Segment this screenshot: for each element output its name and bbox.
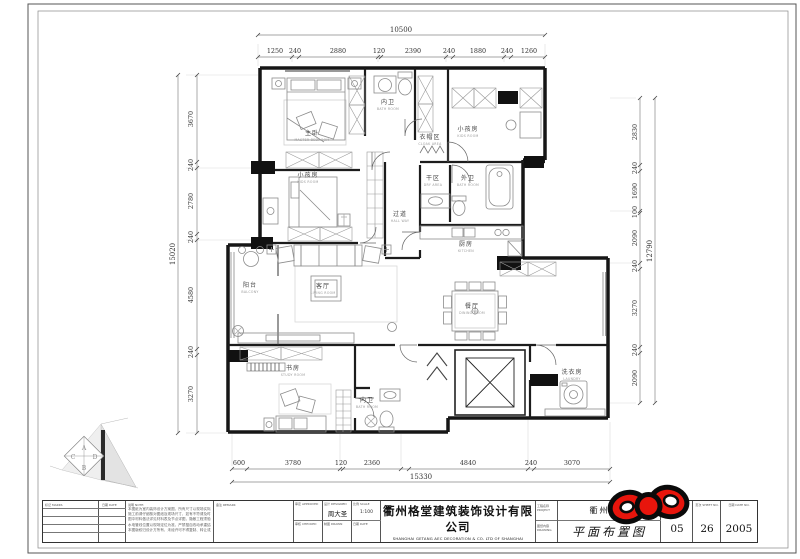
dim-bottom-overall: 15330 — [410, 473, 432, 481]
dim-left-seg: 3670 — [187, 111, 195, 127]
room-sublabel: LIVING ROOM — [311, 291, 336, 295]
sign-scale-label: 比例 SCALE — [353, 502, 370, 506]
dim-bottom-seg: 2360 — [364, 459, 380, 467]
kids2-furniture — [263, 177, 350, 227]
company-cell: 衢州格堂建筑装饰设计有限公司 SHANGHAI GETANG AEC DECOR… — [381, 501, 536, 542]
dim-top-overall: 10500 — [390, 26, 412, 34]
dim-right-seg: 2830 — [631, 124, 639, 140]
sign-drawn-label: 制图 DRAWN — [324, 522, 342, 526]
project-label: 工程名称PROJECT — [537, 504, 550, 512]
company-name-cn: 衢州格堂建筑装饰设计有限公司 — [381, 503, 535, 535]
signature-grid: 审定 APPROVED 设计 DESIGNED 周大圣 比例 SCALE 1:1… — [294, 501, 381, 542]
room-label-hall: 过道 — [393, 210, 407, 218]
keyplan-letter-a: A — [81, 445, 87, 452]
room-label-kids-top: 小孩房 — [457, 125, 478, 133]
drawing-label: 图纸内容DRAWING — [537, 524, 552, 532]
date-header: 日期 DATE NO. — [723, 503, 755, 507]
room-sublabel: KITCHEN — [458, 249, 474, 253]
dim-right-seg: 2090 — [631, 230, 639, 246]
room-sublabel: LAUNDRY — [563, 377, 580, 381]
sign-date-label: 日期 DATE — [353, 522, 368, 526]
window-lines — [231, 252, 606, 338]
revision-col1-header: 标记 MARKS — [45, 503, 63, 507]
room-label-balcony: 阳台 — [243, 281, 257, 289]
room-sublabel: BATH ROOM — [356, 405, 378, 409]
dim-left-seg: 4580 — [187, 287, 195, 303]
company-name-en: SHANGHAI GETANG AEC DECORATION & CO. LTD… — [381, 536, 535, 541]
note-line: 图中材料做法详见材料表及节点详图，隐蔽工程须验收合格后方可封闭。 — [128, 517, 211, 522]
room-label-laundry: 洗衣房 — [561, 368, 582, 376]
sheet-no-value: 26 — [693, 523, 721, 535]
room-sublabel: CLOAK AREA — [418, 142, 442, 146]
sign-approved-label: 审定 APPROVED — [295, 502, 318, 506]
bath-bottom-fixtures — [379, 389, 400, 432]
dim-chain-left: 15020 3670 240 2780 240 4580 240 3270 — [169, 73, 199, 435]
room-label-dining: 餐厅 — [465, 302, 479, 310]
drawing-sheet: 10500 1250 240 2880 120 2390 240 1880 24… — [0, 0, 800, 559]
dim-left-seg: 240 — [187, 159, 195, 171]
sign-checked-label: 审核 CHECKED — [295, 522, 316, 526]
dim-left-overall: 15020 — [169, 243, 177, 265]
room-sublabel: BALCONY — [241, 290, 258, 294]
keyplan-letter-b: B — [82, 465, 87, 472]
elevator-shaft — [455, 350, 525, 415]
dim-right-seg: 100 — [631, 206, 639, 218]
dim-left-seg: 240 — [187, 231, 195, 243]
dim-left-seg: 2780 — [187, 193, 195, 209]
dim-chain-bottom: 15330 600 3780 120 2360 4840 240 3070 — [230, 459, 612, 484]
dim-right-seg: 240 — [631, 344, 639, 356]
dim-bottom-seg: 120 — [335, 459, 347, 467]
dim-top-seg: 240 — [501, 47, 513, 55]
dim-left-seg: 240 — [187, 346, 195, 358]
kids-top-furniture — [506, 112, 541, 138]
bath-top-fixtures — [374, 72, 412, 95]
designer-name: 周大圣 — [323, 508, 352, 518]
dim-chain-top: 10500 1250 240 2880 120 2390 240 1880 24… — [256, 26, 547, 59]
dim-chain-right: 12790 2830 240 1690 100 2090 240 3270 24… — [631, 96, 657, 405]
room-label-cloak: 衣帽区 — [419, 133, 440, 141]
room-sublabel: HALL WAY — [391, 219, 409, 223]
room-sublabel: BATH ROOM — [457, 183, 479, 187]
room-sublabel: STUDY ROOM — [281, 373, 306, 377]
dim-bottom-seg: 240 — [525, 459, 537, 467]
dim-bottom-seg: 600 — [233, 459, 245, 467]
room-sublabel: DINING ROOM — [459, 311, 485, 315]
keyplan-letter-d: D — [93, 454, 98, 461]
bow-icon — [607, 484, 690, 525]
dim-bottom-seg: 3070 — [564, 459, 580, 467]
dim-right-seg: 240 — [631, 260, 639, 272]
room-label-kitchen: 厨房 — [459, 240, 473, 248]
room-sublabel: KIDS ROOM — [297, 180, 318, 184]
room-sublabel: DRY AREA — [424, 183, 443, 187]
remark-label: 备注 REMARK — [216, 503, 236, 507]
dim-right-seg: 3270 — [631, 300, 639, 316]
room-label-study: 书房 — [286, 364, 300, 372]
dim-top-seg: 1260 — [521, 47, 537, 55]
stair-symbol — [427, 353, 447, 380]
room-label-kids-2: 小孩房 — [297, 171, 318, 179]
dim-right-seg: 2090 — [631, 370, 639, 386]
cloak-hanger-squiggle — [420, 146, 444, 153]
note-line: 本图版权归设计方所有，未经许可不得复制、转让或用于其他工程。 — [128, 528, 211, 533]
room-sublabel: KIDS ROOM — [457, 134, 478, 138]
dim-left-seg: 3270 — [187, 386, 195, 402]
room-label-bath-out: 外卫 — [461, 174, 475, 182]
room-sublabel: MASTER BEDROOM — [295, 138, 330, 142]
dim-top-seg: 240 — [289, 47, 301, 55]
bow-logo — [606, 476, 692, 534]
dim-top-seg: 1880 — [470, 47, 486, 55]
revision-col2-header: 日期 DATE — [102, 503, 117, 507]
dim-top-seg: 2390 — [405, 47, 421, 55]
room-label-master-bedroom: 主卧 — [305, 129, 319, 137]
notes-cell: 说明 NOTE: 本图纸为室内装饰设计方案图，所有尺寸以现场实际放样为准。 施工… — [126, 501, 214, 542]
room-sublabel: BATH ROOM — [377, 107, 399, 111]
dim-top-seg: 2880 — [330, 47, 346, 55]
sheet-border — [28, 4, 796, 553]
remark-cell: 备注 REMARK — [214, 501, 294, 542]
room-label-bath-top: 内卫 — [381, 98, 395, 106]
scale-value: 1:100 — [352, 510, 381, 515]
sheet-no-header: 页次 SHEET NO. — [695, 503, 719, 507]
dim-top-seg: 240 — [443, 47, 455, 55]
dim-bottom-seg: 4840 — [460, 459, 476, 467]
bath-out-fixtures — [452, 165, 513, 216]
dry-area-vanity — [421, 194, 450, 208]
dim-right-seg: 1690 — [631, 183, 639, 199]
revision-table: 标记 MARKS 日期 DATE — [43, 501, 126, 542]
dim-bottom-seg: 3780 — [285, 459, 301, 467]
dim-right-seg: 240 — [631, 162, 639, 174]
extension-lines — [186, 44, 636, 480]
room-label-living: 客厅 — [316, 282, 330, 290]
keyplan-letter-c: C — [71, 454, 76, 461]
laundry-washer — [545, 381, 605, 416]
dim-top-seg: 1250 — [267, 47, 283, 55]
room-label-dry-area: 干区 — [426, 175, 440, 182]
room-label-bath-bottom: 内卫 — [360, 396, 374, 404]
dim-right-overall: 12790 — [646, 240, 654, 262]
sign-designed-label: 设计 DESIGNED — [324, 502, 347, 506]
date-value: 2005 — [721, 523, 757, 535]
study-furniture — [247, 363, 377, 432]
keyplan-symbol: A C D B — [50, 418, 138, 488]
dim-top-seg: 120 — [373, 47, 385, 55]
